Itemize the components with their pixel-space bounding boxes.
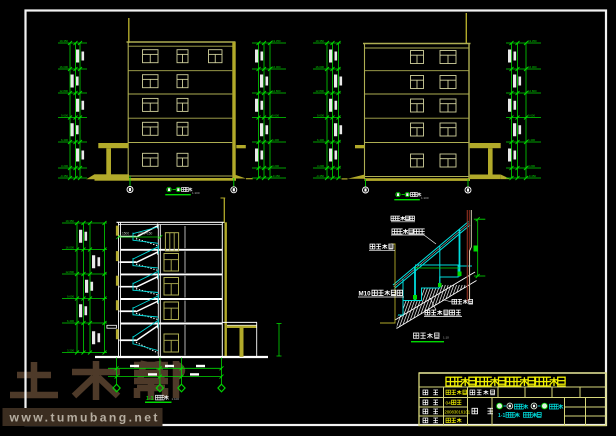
svg-text:-0.450: -0.450 [528, 174, 536, 178]
svg-text:6.400: 6.400 [317, 138, 324, 142]
svg-text:19.350: 19.350 [272, 39, 281, 43]
svg-text:1-1: 1-1 [146, 396, 154, 402]
svg-text:12.800: 12.800 [65, 270, 74, 274]
svg-text:9.600: 9.600 [317, 113, 324, 117]
svg-text:12.800: 12.800 [315, 89, 324, 93]
svg-text:-0.450: -0.450 [272, 174, 280, 178]
svg-text:12.800: 12.800 [272, 89, 281, 93]
svg-text:16.000: 16.000 [65, 245, 74, 249]
svg-text:6.400: 6.400 [61, 138, 68, 142]
svg-text:16.000: 16.000 [315, 65, 324, 69]
svg-text:19.350: 19.350 [65, 219, 74, 223]
svg-text:3.200: 3.200 [272, 164, 279, 168]
svg-text:3.200: 3.200 [317, 164, 324, 168]
svg-text:6.400: 6.400 [67, 319, 74, 323]
svg-text:3.200: 3.200 [61, 164, 68, 168]
svg-text:3.200: 3.200 [528, 164, 535, 168]
svg-text:16.000: 16.000 [59, 65, 68, 69]
svg-text:19.350: 19.350 [315, 39, 324, 43]
svg-text:9.600: 9.600 [61, 113, 68, 117]
svg-text:16.000: 16.000 [528, 65, 537, 69]
svg-text:-0.450: -0.450 [316, 174, 324, 178]
svg-text:16.000: 16.000 [272, 65, 281, 69]
svg-text:19.350: 19.350 [59, 39, 68, 43]
svg-text:-0.450: -0.450 [60, 174, 68, 178]
svg-text:19.350: 19.350 [528, 39, 537, 43]
svg-text:9.600: 9.600 [528, 113, 535, 117]
svg-text:1500: 1500 [122, 231, 129, 235]
svg-text:04: 04 [446, 400, 452, 406]
svg-text:9.600: 9.600 [67, 294, 74, 298]
svg-text:9.600: 9.600 [272, 113, 279, 117]
svg-text:www.tumubang.net: www.tumubang.net [9, 411, 160, 425]
svg-text:1:10: 1:10 [443, 336, 449, 340]
svg-text:3.200: 3.200 [67, 348, 74, 352]
svg-text:6.400: 6.400 [272, 138, 279, 142]
svg-text:1:100: 1:100 [172, 397, 180, 401]
svg-text:2700×150: 2700×150 [138, 231, 152, 235]
svg-text:1:100: 1:100 [421, 196, 429, 200]
svg-text:M10: M10 [359, 291, 372, 298]
svg-text:6.400: 6.400 [528, 138, 535, 142]
svg-text:12.800: 12.800 [59, 89, 68, 93]
svg-text:1-1: 1-1 [498, 413, 505, 419]
svg-text:12.800: 12.800 [528, 89, 537, 93]
svg-text:20083016101: 20083016101 [445, 409, 471, 414]
svg-text:1:100: 1:100 [192, 191, 200, 195]
